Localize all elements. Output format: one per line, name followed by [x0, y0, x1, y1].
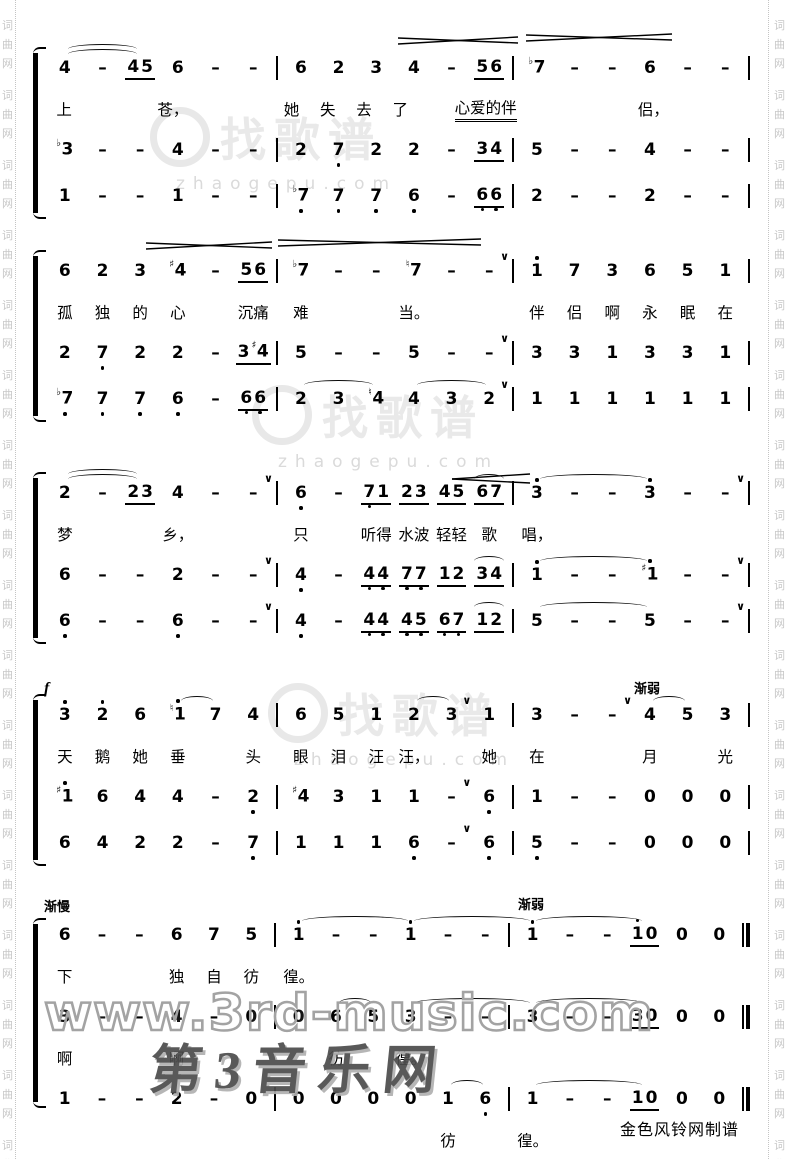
barline [744, 785, 754, 809]
system-bracket-icon [33, 924, 44, 1102]
lyric-token: 在 [518, 745, 556, 767]
note-token: 6 [395, 833, 433, 853]
note-token: – [429, 925, 466, 945]
note-digit: 1 [369, 706, 383, 725]
note-token: – [589, 1089, 626, 1109]
note-digit: 1 [526, 926, 540, 945]
note-token: 77 [395, 564, 433, 587]
octave-dot-below [245, 411, 249, 415]
lyric-token: 头 [234, 745, 272, 767]
note-token: 0 [706, 787, 744, 807]
note-token: 23 [395, 482, 433, 505]
note-token: 4 [282, 565, 320, 585]
lyric-token: 泪 [320, 745, 358, 767]
barline [508, 609, 518, 633]
note-digit: 6 [253, 261, 267, 280]
note-digit: 4 [376, 565, 390, 584]
note-digit: 0 [681, 788, 695, 807]
note-token: 4 [282, 611, 320, 631]
barline [744, 481, 754, 505]
barline [744, 56, 754, 80]
barline [744, 341, 754, 365]
lyric-token: 汪 [357, 745, 395, 767]
note-token: 1 [320, 833, 358, 853]
note-token: – [197, 787, 235, 807]
lyric-token: 独 [84, 301, 122, 323]
octave-dot-below [101, 366, 105, 370]
octave-dot-above [535, 478, 539, 482]
note-digit: 4 [96, 834, 110, 853]
octave-dot-below [337, 209, 341, 213]
note-digit: 4 [407, 59, 421, 78]
note-digit: 1 [718, 344, 732, 363]
barline [272, 259, 282, 283]
lyric-line: 孤独的心沉痛难当。伴侣啊永眠在 [46, 294, 754, 330]
lyric-token: 苍， [155, 98, 191, 120]
note-token: 3♯4 [234, 342, 272, 365]
note-digit: 1 [294, 834, 308, 853]
note-digit: 4 [376, 611, 390, 630]
note-digit: 2 [246, 788, 260, 807]
note-digit: 2 [133, 834, 147, 853]
note-digit: 3 [332, 390, 346, 409]
note-digit: 1 [530, 390, 544, 409]
note-token: 2 [121, 833, 159, 853]
barline [744, 259, 754, 283]
note-digit: 3 [530, 484, 544, 503]
lyric-token: 伴 [518, 301, 556, 323]
note-digit: 1 [369, 788, 383, 807]
slur-icon [540, 474, 647, 484]
barline [508, 785, 518, 809]
note-token: – [84, 483, 122, 503]
octave-dot-below [405, 633, 409, 637]
slur-icon [68, 469, 137, 479]
note-token: 3 [556, 343, 594, 363]
note-token: 2 [46, 483, 84, 503]
lyric-line: 天鹅她垂头眼泪汪汪，她在月光 [46, 738, 754, 774]
note-token: 5 [395, 343, 433, 363]
note-token: 1 [395, 787, 433, 807]
note-digit: 1 [681, 390, 695, 409]
note-digit: 1 [718, 390, 732, 409]
note-token: 23 [121, 482, 159, 505]
note-digit: 6 [438, 611, 452, 630]
note-token: 3 [357, 58, 395, 78]
note-digit: ♯4 [251, 342, 270, 361]
note-token: 5 [669, 705, 707, 725]
note-token: 71 [357, 482, 395, 505]
note-digit: 6 [58, 612, 72, 631]
note-digit: 6 [171, 612, 185, 631]
note-digit: ♮7 [405, 261, 423, 280]
note-digit: 2 [96, 262, 110, 281]
slur-icon [474, 474, 504, 484]
note-digit: 3 [133, 262, 147, 281]
note-digit: ♯4 [168, 261, 187, 280]
note-digit: 2 [171, 566, 185, 585]
note-digit: 0 [718, 788, 732, 807]
note-token: – [593, 833, 631, 853]
note-token: 2 [470, 389, 508, 409]
note-token: – [470, 261, 508, 281]
note-token: 6 [158, 925, 195, 945]
note-token: 5 [518, 833, 556, 853]
note-digit: 1 [530, 566, 544, 585]
note-token: 1 [357, 705, 395, 725]
octave-dot-below [481, 208, 485, 212]
note-token: – [197, 611, 235, 631]
note-digit: 0 [712, 1008, 726, 1027]
note-digit: 6 [58, 262, 72, 281]
barline [504, 1087, 514, 1111]
slur-icon [536, 916, 642, 926]
octave-dot-below [63, 412, 67, 416]
lyric-token: 侣 [556, 301, 594, 323]
system-bracket-icon [33, 53, 44, 213]
note-digit: 0 [712, 926, 726, 945]
note-digit: 4 [58, 59, 72, 78]
note-digit: 6 [482, 834, 496, 853]
note-token: 1 [514, 1089, 551, 1109]
note-token: 3 [518, 705, 556, 725]
note-digit: 3 [643, 484, 657, 503]
note-digit: 3 [140, 483, 154, 502]
lyric-token: 侣， [635, 98, 671, 120]
slur-icon [417, 696, 449, 706]
note-digit: 2 [643, 187, 657, 206]
note-token: – [669, 483, 707, 503]
note-token: – [433, 186, 471, 206]
note-token: 6 [282, 58, 320, 78]
note-digit: 6 [170, 926, 184, 945]
system-4: 326♮17465123∨13––∨453天鹅她垂头眼泪汪汪，她在月光♯1644… [46, 692, 754, 866]
note-digit: 3 [332, 788, 346, 807]
note-token: – [121, 565, 159, 585]
note-token: 56 [470, 57, 508, 80]
note-token: 2 [159, 833, 197, 853]
note-token: – [197, 483, 235, 503]
transcriber-credit: 金色风铃网制谱 [620, 1116, 739, 1140]
note-token: – [234, 58, 272, 78]
barline [272, 563, 282, 587]
note-digit: 4 [438, 483, 452, 502]
dim-marking: 渐弱 [634, 678, 660, 697]
lyric-token: 的 [121, 301, 159, 323]
note-digit: 5 [530, 834, 544, 853]
note-token: 45 [395, 610, 433, 633]
barline [508, 341, 518, 365]
slur-icon [540, 556, 647, 566]
final-barline [738, 923, 754, 947]
note-digit: 5 [475, 58, 489, 77]
accidental-flat-icon: ♭ [292, 184, 297, 195]
octave-dot-above [531, 920, 535, 924]
dim-marking: 渐弱 [518, 894, 544, 913]
system-bracket-icon [33, 256, 44, 416]
note-token: – [317, 925, 354, 945]
note-token: 6 [631, 58, 669, 78]
barline [744, 703, 754, 727]
note-token: 6 [46, 925, 83, 945]
note-digit: 2 [369, 141, 383, 160]
note-digit: 1 [631, 925, 645, 944]
note-digit: ♯4 [291, 787, 310, 806]
note-token: 6 [467, 1089, 504, 1109]
note-token: 10 [626, 924, 663, 947]
note-token: 6 [46, 833, 84, 853]
note-token: – [84, 140, 122, 160]
note-digit: 1 [605, 344, 619, 363]
octave-dot-below [337, 163, 341, 167]
note-digit: 1 [376, 483, 390, 502]
note-token: – [706, 611, 744, 631]
note-digit: 6 [96, 788, 110, 807]
note-token: 12 [470, 610, 508, 633]
note-token: 7 [556, 261, 594, 281]
note-token: – [197, 58, 235, 78]
note-token: 3 [593, 261, 631, 281]
octave-dot-below [419, 633, 423, 637]
note-token: 7 [320, 186, 358, 206]
note-digit: 7 [452, 611, 466, 630]
note-digit: 7 [209, 706, 223, 725]
note-token: 3 [433, 389, 471, 409]
note-token: 1 [706, 261, 744, 281]
lyric-line: 上苍，她失去了心爱的伴侣， [46, 91, 754, 127]
note-token: 0 [669, 833, 707, 853]
note-digit: 3 [605, 262, 619, 281]
accidental-flat-icon: ♭ [56, 387, 61, 398]
note-digit: 5 [407, 344, 421, 363]
note-token: 1 [706, 343, 744, 363]
note-digit: 5 [239, 261, 253, 280]
note-digit: 3 [237, 343, 251, 362]
note-token: – [433, 343, 471, 363]
lyric-token: 水波 [395, 523, 433, 545]
note-token: 7 [234, 833, 272, 853]
note-token: ♭7 [282, 186, 320, 206]
note-digit: 1 [631, 1089, 645, 1108]
final-barline [738, 1005, 754, 1029]
barline [272, 138, 282, 162]
lyric-token: 心 [159, 301, 197, 323]
note-digit: 4 [126, 58, 140, 77]
system-1: 4–456––6234–56♭7––6––上苍，她失去了心爱的伴侣，♭3––4–… [46, 45, 754, 219]
note-digit: 1 [171, 187, 185, 206]
note-token: – [320, 611, 358, 631]
note-token: 66 [234, 388, 272, 411]
note-token: 6 [159, 58, 197, 78]
note-token: – [234, 483, 272, 503]
note-digit: 3 [568, 344, 582, 363]
notation-line: 326♮17465123∨13––∨453 [46, 692, 754, 738]
note-token: 1 [46, 1089, 83, 1109]
note-digit: 4 [489, 140, 503, 159]
lyric-token: 失 [310, 98, 346, 120]
note-digit: ♭3 [55, 140, 74, 159]
slur-icon [474, 556, 504, 566]
note-token: 4 [631, 140, 669, 160]
note-digit: 2 [58, 344, 72, 363]
note-token: 6 [159, 611, 197, 631]
note-digit: 3 [445, 706, 459, 725]
note-digit: 0 [718, 834, 732, 853]
note-token: – [433, 261, 471, 281]
note-digit: 0 [675, 1090, 689, 1109]
note-token: 4 [159, 787, 197, 807]
note-token: 2 [518, 186, 556, 206]
note-token: – [84, 186, 122, 206]
note-digit: 1 [482, 706, 496, 725]
note-digit: 7 [332, 141, 346, 160]
note-token: 1 [159, 186, 197, 206]
note-token: 2 [84, 261, 122, 281]
slur-icon [653, 696, 685, 706]
note-digit: ♯1 [640, 565, 659, 584]
lyric-token: 她 [121, 745, 159, 767]
note-token: 2 [395, 140, 433, 160]
note-digit: 6 [58, 566, 72, 585]
note-token: ♮1 [159, 705, 197, 725]
note-token: – [556, 787, 594, 807]
note-token: 66 [470, 185, 508, 208]
note-token: 7 [195, 925, 232, 945]
note-digit: 5 [294, 344, 308, 363]
note-token: – [593, 140, 631, 160]
forte-marking: f [44, 680, 49, 698]
note-token: – [556, 833, 594, 853]
note-token: 6 [631, 261, 669, 281]
note-digit: ♭7 [291, 261, 310, 280]
note-token: ♭7 [518, 58, 556, 78]
note-token: 6 [282, 483, 320, 503]
note-digit: 6 [643, 59, 657, 78]
note-digit: 1 [568, 390, 582, 409]
note-token: – [355, 925, 392, 945]
lyric-token: 汪， [395, 745, 433, 767]
note-digit: 6 [58, 834, 72, 853]
octave-dot-below [484, 1112, 488, 1116]
note-digit: 5 [530, 141, 544, 160]
note-token: – [320, 483, 358, 503]
note-digit: 1 [407, 788, 421, 807]
note-token: 6 [470, 833, 508, 853]
octave-dot-below [412, 209, 416, 213]
note-token: 1 [518, 389, 556, 409]
note-digit: 7 [96, 390, 110, 409]
lyric-line: 梦乡，只听得水波轻轻歌唱， [46, 516, 754, 552]
barline [508, 387, 518, 411]
note-digit: 2 [530, 187, 544, 206]
lyric-token: 唱， [518, 523, 556, 545]
note-token: 3 [46, 705, 84, 725]
note-digit: 0 [675, 1008, 689, 1027]
note-token: 7 [84, 389, 122, 409]
note-token: 2 [46, 343, 84, 363]
note-token: 3 [518, 483, 556, 503]
note-token: 3 [706, 705, 744, 725]
barline [508, 138, 518, 162]
accidental-flat-icon: ♭ [56, 138, 61, 149]
octave-dot-below [405, 587, 409, 591]
note-token: 5 [233, 925, 270, 945]
barline [744, 138, 754, 162]
note-digit: 7 [332, 187, 346, 206]
barline [508, 481, 518, 505]
note-digit: 2 [294, 141, 308, 160]
barline [504, 923, 514, 947]
slur-icon [68, 44, 137, 54]
octave-dot-below [258, 411, 262, 415]
lyric-token: 难 [282, 301, 320, 323]
lyric-token: 听得 [357, 523, 395, 545]
note-token: 3 [518, 343, 556, 363]
note-digit: 5 [332, 706, 346, 725]
note-digit: 1 [404, 926, 418, 945]
note-token: 0 [706, 833, 744, 853]
system-3: 2–234––∨6–712345673––3––∨梦乡，只听得水波轻轻歌唱，6–… [46, 470, 754, 644]
note-token: ♭7 [282, 261, 320, 281]
octave-dot-below [299, 588, 303, 592]
note-digit: 7 [362, 483, 376, 502]
note-digit: ♭7 [291, 186, 310, 205]
note-token: – [83, 925, 120, 945]
note-digit: 6 [133, 706, 147, 725]
lyric-token: 梦 [46, 523, 84, 545]
notation-line: 4–456––6234–56♭7––6–– [46, 45, 754, 91]
octave-dot-above [648, 559, 652, 563]
octave-dot-above [297, 920, 301, 924]
note-token: – [593, 705, 631, 725]
note-token: 5 [669, 261, 707, 281]
notation-line: 6––2––∨4–447712341––♯1––∨ [46, 552, 754, 598]
note-token: 1 [556, 389, 594, 409]
notation-line: 1––1––♭7776–662––2–– [46, 173, 754, 219]
note-digit: 2 [332, 59, 346, 78]
note-digit: 3 [530, 706, 544, 725]
note-token: 0 [631, 833, 669, 853]
note-digit: 4 [643, 141, 657, 160]
note-token: – [556, 611, 594, 631]
note-token: 1 [631, 389, 669, 409]
note-token: 1 [357, 787, 395, 807]
barline [272, 785, 282, 809]
note-token: – [197, 389, 235, 409]
lyric-token: 轻轻 [433, 523, 471, 545]
octave-dot-below [487, 856, 491, 860]
note-token: – [234, 140, 272, 160]
note-token: – [121, 140, 159, 160]
octave-dot-below [299, 506, 303, 510]
barline [744, 563, 754, 587]
barline [272, 481, 282, 505]
system-2: 623♯4–56♭7––♮7––∨173651孤独的心沉痛难当。伴侣啊永眠在27… [46, 248, 754, 422]
note-token: – [593, 483, 631, 503]
note-token: 2 [159, 565, 197, 585]
slur-icon [304, 380, 373, 390]
note-token: ♯4 [282, 787, 320, 807]
note-token: ♭3 [46, 140, 84, 160]
3rd-music-name-watermark: 第3音乐网 [146, 1028, 452, 1104]
note-token: 6 [46, 611, 84, 631]
note-token: – [556, 565, 594, 585]
octave-dot-below [443, 633, 447, 637]
note-token: 5 [320, 705, 358, 725]
note-digit: 3 [681, 344, 695, 363]
note-token: – [320, 565, 358, 585]
note-token: – [706, 186, 744, 206]
